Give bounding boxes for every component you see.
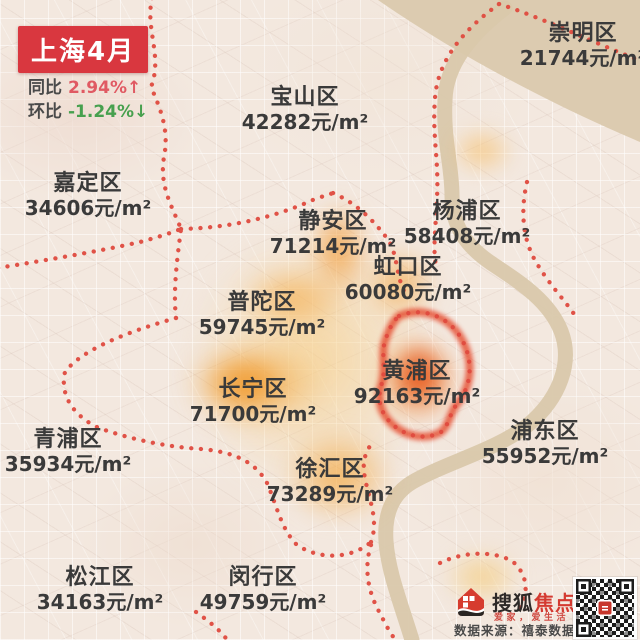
yoy-stat: 同比2.94%↑ xyxy=(28,73,141,98)
sohu-house-icon xyxy=(454,585,488,619)
district-name: 黄浦区 xyxy=(354,359,480,385)
district-name: 普陀区 xyxy=(199,290,325,316)
district-label-jingan: 静安区 71214元/m² xyxy=(270,209,396,259)
district-label-pudong: 浦东区 55952元/m² xyxy=(482,419,608,469)
page-title: 上海4月 xyxy=(18,26,148,73)
yoy-value: 2.94%↑ xyxy=(68,78,141,98)
district-price: 60080元/m² xyxy=(345,281,471,305)
district-name: 虹口区 xyxy=(345,255,471,281)
district-price: 73289元/m² xyxy=(267,483,393,507)
district-price: 55952元/m² xyxy=(482,445,608,469)
district-label-hongkou: 虹口区 60080元/m² xyxy=(345,255,471,305)
district-label-xuhui: 徐汇区 73289元/m² xyxy=(267,457,393,507)
qr-pattern xyxy=(576,579,634,637)
district-price: 58408元/m² xyxy=(404,225,530,249)
district-price: 71700元/m² xyxy=(190,403,316,427)
district-name: 徐汇区 xyxy=(267,457,393,483)
district-price: 34163元/m² xyxy=(37,591,163,615)
district-label-yangpu: 杨浦区 58408元/m² xyxy=(404,199,530,249)
district-name: 宝山区 xyxy=(242,85,368,111)
district-label-songjiang: 松江区 34163元/m² xyxy=(37,565,163,615)
district-price: 92163元/m² xyxy=(354,385,480,409)
qr-code xyxy=(573,577,637,639)
district-name: 浦东区 xyxy=(482,419,608,445)
district-label-changning: 长宁区 71700元/m² xyxy=(190,377,316,427)
district-name: 松江区 xyxy=(37,565,163,591)
yoy-label: 同比 xyxy=(28,78,62,98)
district-label-qingpu: 青浦区 35934元/m² xyxy=(5,427,131,477)
heat-yangpu-patch xyxy=(438,118,526,184)
district-label-baoshan: 宝山区 42282元/m² xyxy=(242,85,368,135)
district-label-chongming: 崇明区 21744元/m² xyxy=(520,21,640,71)
district-price: 35934元/m² xyxy=(5,453,131,477)
district-price: 21744元/m² xyxy=(520,47,640,71)
district-name: 嘉定区 xyxy=(25,171,151,197)
district-name: 崇明区 xyxy=(520,21,640,47)
district-name: 静安区 xyxy=(270,209,396,235)
district-name: 长宁区 xyxy=(190,377,316,403)
district-price: 34606元/m² xyxy=(25,197,151,221)
district-label-jiading: 嘉定区 34606元/m² xyxy=(25,171,151,221)
district-price: 59745元/m² xyxy=(199,316,325,340)
district-label-minhang: 闵行区 49759元/m² xyxy=(200,565,326,615)
district-name: 青浦区 xyxy=(5,427,131,453)
district-price: 42282元/m² xyxy=(242,111,368,135)
mom-value: -1.24%↓ xyxy=(68,102,148,122)
district-name: 杨浦区 xyxy=(404,199,530,225)
district-label-huangpu: 黄浦区 92163元/m² xyxy=(354,359,480,409)
mom-stat: 环比-1.24%↓ xyxy=(28,97,148,122)
data-source: 数据来源：禧泰数据 xyxy=(454,620,576,639)
district-name: 闵行区 xyxy=(200,565,326,591)
price-map-poster: 崇明区 21744元/m² 宝山区 42282元/m² 嘉定区 34606元/m… xyxy=(0,0,640,640)
district-label-putuo: 普陀区 59745元/m² xyxy=(199,290,325,340)
district-price: 49759元/m² xyxy=(200,591,326,615)
mom-label: 环比 xyxy=(28,102,62,122)
